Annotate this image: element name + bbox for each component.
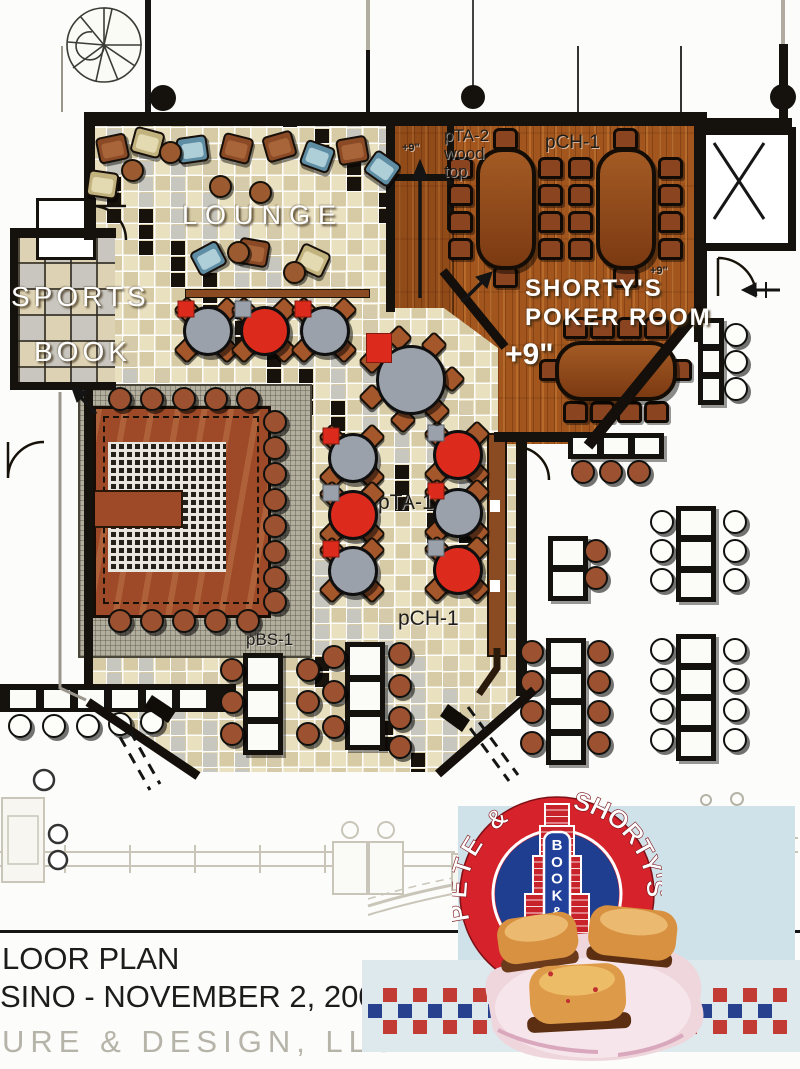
- pbs1-tag: pBS-1: [246, 631, 293, 648]
- pch1-dining-tag: pCH-1: [398, 608, 459, 629]
- sports-book-label-2: BOOK: [34, 338, 131, 366]
- lounge-label: LOUNGE: [182, 202, 344, 229]
- pta1-tag: pTA-1: [378, 492, 434, 513]
- title-line-1: LOOR PLAN: [2, 941, 179, 977]
- sliders-photo: [468, 880, 718, 1069]
- band-check: [383, 988, 397, 1002]
- elevator-x-icon: [714, 143, 764, 219]
- band-check: [743, 988, 757, 1002]
- plus9-ramp-tag: +9": [402, 143, 420, 154]
- band-check: [413, 988, 427, 1002]
- svg-text:B: B: [552, 837, 563, 854]
- pta2-tag-wood: wood: [444, 145, 485, 162]
- poker-room-label-1: SHORTY'S: [525, 277, 663, 301]
- band-check: [413, 1020, 427, 1034]
- band-check: [758, 1004, 772, 1018]
- pch1-poker-tag: pCH-1: [545, 133, 600, 152]
- band-check: [728, 1004, 742, 1018]
- door-leaves: [144, 695, 470, 732]
- plus9-corner-tag: +9": [650, 266, 668, 277]
- svg-text:O: O: [551, 854, 563, 871]
- direction-arrows: [72, 160, 780, 414]
- slider-bun: [586, 903, 679, 968]
- band-check: [383, 1020, 397, 1034]
- band-check: [773, 1020, 787, 1034]
- firm-name: URE & DESIGN, LLC: [2, 1024, 400, 1060]
- band-check: [398, 1004, 412, 1018]
- slider-bun: [524, 962, 631, 1033]
- slider-bun: [495, 910, 582, 974]
- band-check: [773, 988, 787, 1002]
- band-check: [428, 1004, 442, 1018]
- plus9-elevation-label: +9": [505, 340, 553, 370]
- poker-room-label-2: POKER ROOM: [525, 306, 712, 330]
- band-check: [368, 1004, 382, 1018]
- band-check: [443, 1020, 457, 1034]
- pta2-tag: pTA-2: [444, 127, 489, 144]
- pta2-tag-top: top: [444, 163, 468, 180]
- sports-book-label-1: SPORTS: [11, 283, 150, 311]
- floor-plan-page: LOUNGE SPORTS BOOK SHORTY'S POKER ROOM +…: [0, 0, 800, 1069]
- title-line-2: SINO - NOVEMBER 2, 2004: [0, 979, 393, 1015]
- band-check: [743, 1020, 757, 1034]
